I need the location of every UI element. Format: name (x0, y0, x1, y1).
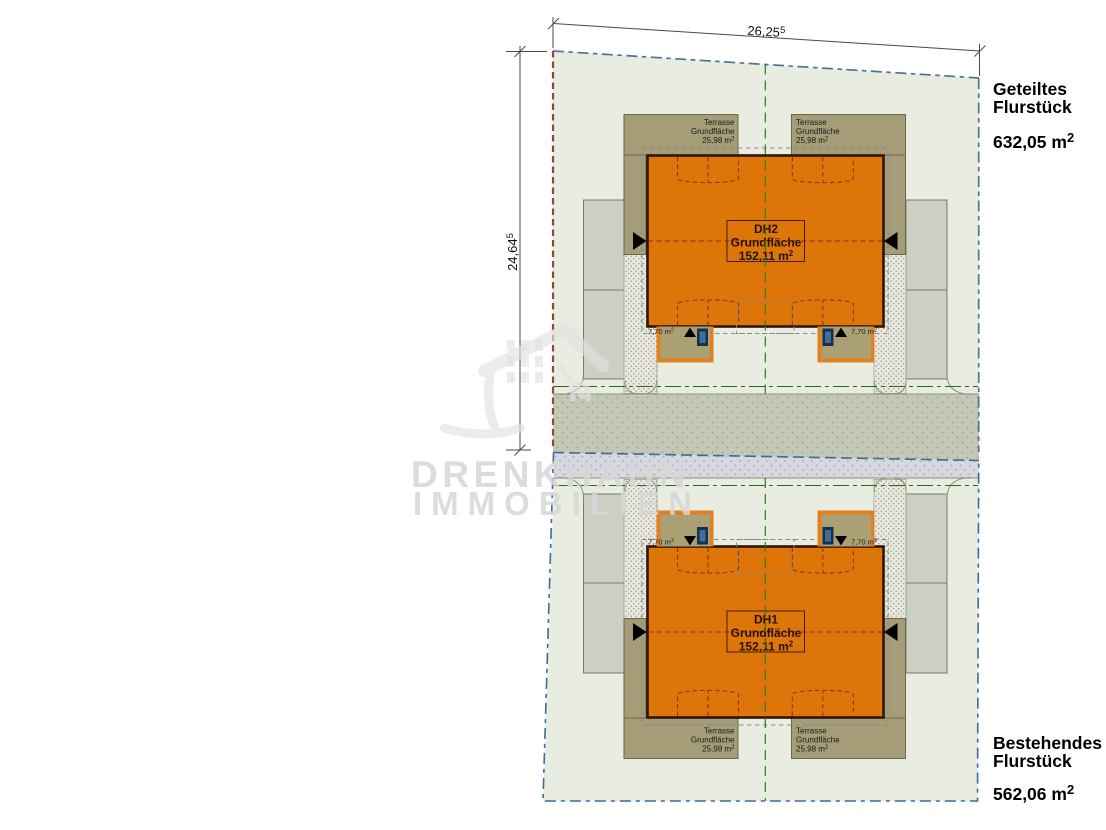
svg-text:7,70 m2: 7,70 m2 (648, 327, 674, 336)
svg-text:Flurstück: Flurstück (993, 97, 1072, 117)
svg-text:Grundfläche: Grundfläche (796, 127, 840, 136)
svg-text:Terrasse: Terrasse (704, 118, 735, 127)
svg-text:Grundfläche: Grundfläche (731, 236, 802, 250)
svg-text:Terrasse: Terrasse (796, 727, 827, 736)
svg-text:26,255: 26,255 (747, 23, 786, 40)
svg-text:7,70 m2: 7,70 m2 (851, 538, 877, 547)
svg-text:7,70 m2: 7,70 m2 (648, 538, 674, 547)
svg-text:Grundfläche: Grundfläche (691, 127, 735, 136)
svg-text:Grundfläche: Grundfläche (731, 626, 802, 640)
svg-text:152,11 m2: 152,11 m2 (739, 249, 794, 263)
svg-text:25,98 m2: 25,98 m2 (796, 136, 829, 145)
svg-text:Flurstück: Flurstück (993, 751, 1072, 771)
svg-text:Terrasse: Terrasse (704, 727, 735, 736)
svg-text:DH2: DH2 (754, 222, 778, 236)
svg-text:Grundfläche: Grundfläche (796, 736, 840, 745)
svg-text:25,98 m2: 25,98 m2 (702, 136, 735, 145)
svg-text:25,98 m2: 25,98 m2 (796, 745, 829, 754)
svg-text:Terrasse: Terrasse (796, 118, 827, 127)
svg-text:Bestehendes: Bestehendes (993, 733, 1102, 753)
svg-text:24,645: 24,645 (505, 233, 520, 271)
svg-text:562,06 m2: 562,06 m2 (993, 782, 1074, 804)
svg-text:Grundfläche: Grundfläche (691, 736, 735, 745)
svg-text:25,98 m2: 25,98 m2 (702, 745, 735, 754)
svg-text:632,05 m2: 632,05 m2 (993, 130, 1074, 152)
svg-text:152,11 m2: 152,11 m2 (739, 640, 794, 654)
svg-text:IMMOBILIEN: IMMOBILIEN (413, 485, 701, 522)
svg-text:7,70 m2: 7,70 m2 (851, 327, 877, 336)
svg-text:DH1: DH1 (754, 613, 778, 627)
svg-text:Geteiltes: Geteiltes (993, 79, 1067, 99)
